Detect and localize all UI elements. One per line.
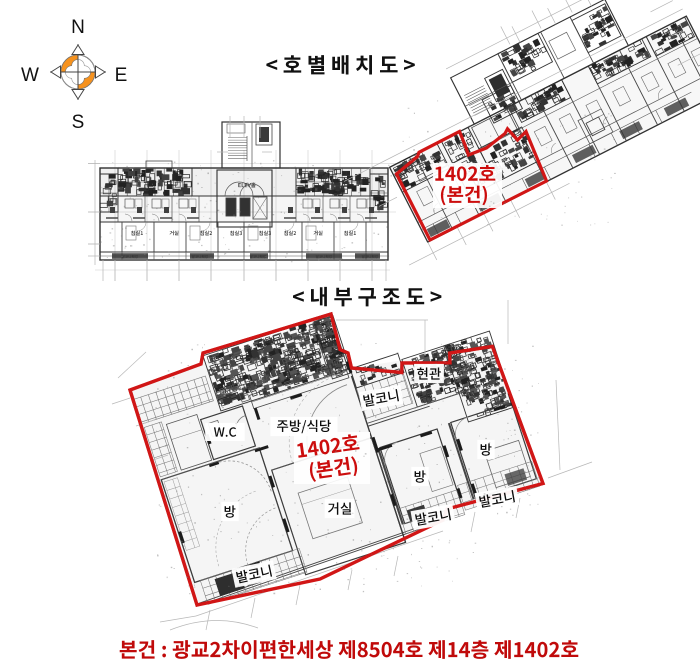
svg-text:E: E <box>115 65 128 86</box>
svg-text:N: N <box>71 17 85 38</box>
svg-text:W: W <box>21 65 39 86</box>
svg-text:S: S <box>72 112 85 133</box>
